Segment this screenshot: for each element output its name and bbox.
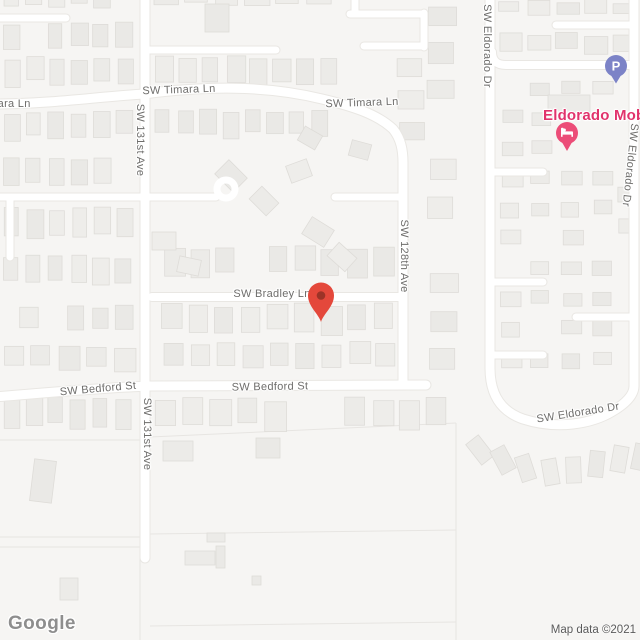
- building: [593, 292, 611, 305]
- building: [93, 24, 108, 46]
- cul-de-sac: [217, 180, 235, 198]
- building: [115, 259, 131, 283]
- building: [26, 397, 42, 425]
- building: [427, 80, 454, 98]
- building: [561, 203, 578, 218]
- building: [374, 247, 395, 276]
- building: [541, 458, 560, 486]
- building: [428, 197, 453, 218]
- building: [59, 346, 80, 370]
- building: [431, 159, 457, 179]
- building: [398, 91, 424, 109]
- building: [26, 255, 40, 282]
- building: [296, 343, 314, 368]
- building: [429, 7, 457, 26]
- building: [189, 305, 207, 332]
- building: [430, 274, 458, 293]
- building: [94, 59, 110, 81]
- building: [630, 443, 640, 471]
- building: [205, 4, 229, 32]
- building: [241, 307, 259, 332]
- building: [256, 438, 280, 458]
- building: [185, 0, 208, 2]
- building: [161, 303, 182, 328]
- building: [502, 142, 523, 155]
- building: [238, 398, 257, 423]
- building: [501, 230, 521, 244]
- building: [286, 159, 313, 183]
- building: [528, 0, 550, 15]
- building: [94, 0, 111, 8]
- building: [562, 171, 583, 185]
- building: [302, 217, 335, 248]
- parking-icon: P: [612, 59, 621, 74]
- building: [5, 346, 24, 365]
- building: [71, 0, 87, 3]
- building: [68, 306, 84, 330]
- building: [295, 246, 316, 270]
- building: [164, 343, 183, 365]
- building: [555, 33, 577, 49]
- building: [376, 344, 395, 366]
- building: [588, 450, 606, 477]
- building: [500, 203, 518, 218]
- building: [227, 56, 245, 83]
- building: [267, 304, 288, 328]
- building: [179, 59, 196, 83]
- building: [307, 0, 331, 4]
- building: [532, 203, 549, 215]
- google-logo[interactable]: Google: [8, 613, 76, 635]
- building: [71, 23, 88, 45]
- building: [562, 81, 580, 93]
- building: [350, 342, 371, 364]
- building: [499, 2, 519, 11]
- building: [92, 258, 109, 285]
- building: [490, 445, 516, 475]
- building: [50, 59, 64, 85]
- building: [155, 110, 169, 133]
- building: [374, 401, 394, 426]
- building: [273, 59, 291, 82]
- building: [115, 348, 136, 371]
- building: [93, 112, 110, 138]
- building: [345, 397, 365, 425]
- building: [557, 3, 580, 14]
- building: [71, 160, 87, 185]
- building: [117, 209, 133, 237]
- building: [289, 112, 303, 133]
- building: [431, 312, 457, 332]
- building: [245, 0, 270, 6]
- building: [155, 56, 173, 82]
- building: [30, 459, 57, 503]
- building: [296, 59, 313, 85]
- building: [397, 59, 422, 77]
- building: [503, 110, 523, 122]
- building: [27, 57, 44, 80]
- destination-pin-dot: [317, 291, 326, 300]
- map-canvas[interactable]: SW Timara LnSW Timara LnSW Timara LnSW 1…: [0, 0, 640, 640]
- building: [4, 158, 20, 186]
- building: [564, 294, 582, 307]
- building: [73, 208, 87, 237]
- building: [270, 343, 288, 365]
- building: [245, 110, 260, 132]
- building: [348, 140, 371, 161]
- building: [207, 533, 225, 542]
- building: [154, 0, 178, 5]
- building: [216, 546, 225, 568]
- building: [249, 59, 266, 87]
- building: [265, 402, 287, 432]
- building: [163, 441, 193, 461]
- building: [276, 0, 299, 4]
- building: [532, 141, 552, 154]
- building: [87, 347, 107, 366]
- building: [514, 453, 536, 482]
- building: [500, 292, 521, 307]
- building: [3, 25, 19, 49]
- building: [530, 83, 549, 95]
- building: [428, 42, 453, 63]
- building: [430, 348, 455, 369]
- building: [60, 578, 78, 600]
- building: [48, 397, 62, 423]
- building: [116, 22, 133, 47]
- building: [223, 112, 239, 138]
- building: [585, 0, 607, 13]
- building: [249, 186, 279, 216]
- building: [202, 58, 217, 82]
- building: [31, 346, 50, 365]
- building: [48, 256, 62, 280]
- building: [252, 576, 261, 585]
- building: [93, 308, 108, 328]
- building: [200, 109, 217, 134]
- building: [183, 398, 203, 425]
- building: [191, 345, 209, 366]
- parking-marker[interactable]: P: [603, 53, 629, 84]
- building: [502, 322, 520, 337]
- building: [594, 200, 612, 214]
- building: [116, 400, 131, 430]
- building: [348, 305, 366, 330]
- lodging-marker[interactable]: [554, 120, 580, 152]
- building: [4, 400, 20, 429]
- building: [179, 111, 194, 133]
- building: [561, 262, 581, 275]
- building: [216, 248, 234, 272]
- building: [94, 158, 111, 183]
- building: [217, 343, 235, 366]
- building: [594, 352, 612, 364]
- building: [71, 114, 86, 137]
- building: [70, 400, 85, 429]
- building: [25, 0, 41, 5]
- building: [566, 457, 582, 484]
- building: [48, 24, 61, 48]
- building: [592, 261, 611, 275]
- destination-pin-body: [308, 283, 334, 323]
- building: [4, 0, 18, 6]
- building: [93, 399, 107, 428]
- building: [116, 110, 133, 133]
- building: [71, 61, 87, 85]
- building: [426, 397, 446, 424]
- building: [185, 551, 215, 565]
- building: [26, 113, 40, 135]
- building: [269, 247, 286, 272]
- building: [563, 230, 583, 245]
- building: [72, 255, 87, 282]
- building: [5, 60, 20, 87]
- building: [27, 210, 44, 239]
- building: [49, 159, 64, 186]
- building: [466, 435, 495, 465]
- building: [94, 207, 110, 234]
- building: [210, 400, 232, 426]
- building: [322, 345, 341, 367]
- building: [214, 308, 232, 333]
- building: [118, 59, 133, 84]
- destination-pin[interactable]: [307, 282, 335, 324]
- map-attribution: Map data ©2021: [551, 624, 636, 636]
- building: [531, 291, 548, 304]
- parcel-lines: [0, 400, 456, 640]
- building: [155, 400, 175, 425]
- building: [593, 171, 613, 185]
- building: [48, 112, 64, 139]
- building: [20, 307, 38, 327]
- building: [562, 320, 582, 333]
- building: [152, 232, 176, 250]
- building: [374, 303, 392, 328]
- building: [50, 211, 65, 236]
- building: [531, 262, 549, 275]
- building: [593, 321, 612, 336]
- building: [584, 37, 607, 55]
- building: [321, 59, 337, 85]
- building: [49, 0, 65, 7]
- building: [399, 401, 419, 430]
- building: [26, 158, 40, 182]
- building: [500, 33, 522, 51]
- building: [115, 305, 133, 329]
- building: [528, 36, 551, 50]
- building: [243, 346, 263, 368]
- building: [562, 354, 580, 369]
- building: [610, 445, 629, 473]
- building: [5, 115, 21, 142]
- building: [266, 112, 283, 133]
